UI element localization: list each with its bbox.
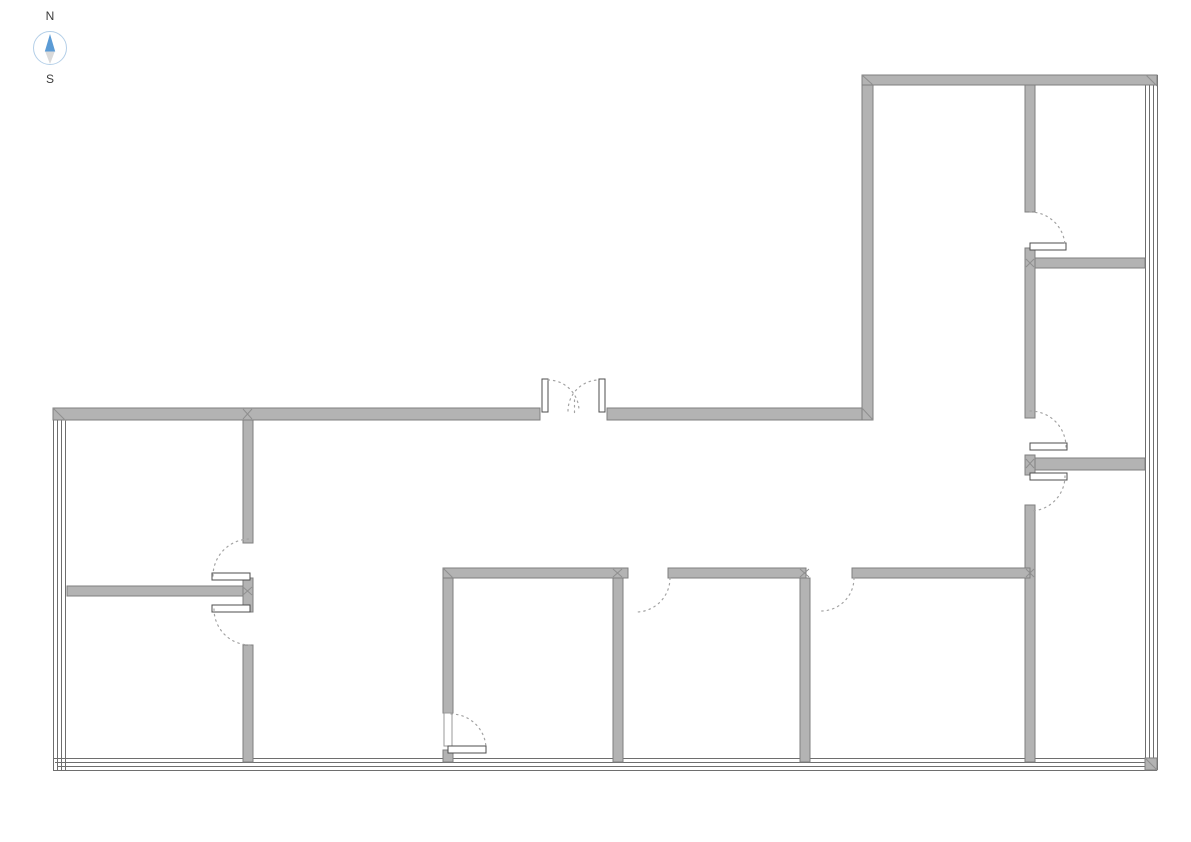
interior-wall-room1-left-upper (443, 578, 453, 713)
interior-wall-bottom-horizontal-2 (668, 568, 806, 578)
interior-wall-right-vertical-2 (1025, 248, 1035, 418)
door-leaf-bottom-right-room (1030, 473, 1067, 480)
exterior-wall-wing-west (862, 75, 873, 420)
interior-wall-bottom-horizontal-3 (852, 568, 1030, 578)
door-leaf-middle-right-room (1030, 443, 1067, 450)
door-swing-room2 (636, 578, 670, 612)
entry-double-door-right-swing (568, 380, 599, 411)
exterior-wall-north-right (607, 408, 873, 420)
entry-double-door-right-leaf (599, 379, 605, 412)
exterior-wall-north-left (53, 408, 540, 420)
interior-wall-left-vertical-upper (243, 420, 253, 543)
interior-wall-left-vertical-lower (243, 645, 253, 762)
door-frame-room1 (444, 713, 452, 746)
interior-wall-bottom-horizontal-1 (443, 568, 628, 578)
door-swing-left-lower-room (214, 609, 250, 645)
door-leaf-left-upper-room (212, 573, 250, 580)
compass-north-label: N (46, 9, 55, 23)
interior-wall-room3-left (800, 578, 810, 762)
interior-wall-right-door-stub (1025, 455, 1035, 475)
floorplan-canvas: N S (0, 0, 1191, 842)
door-swing-top-right-room (1030, 212, 1065, 247)
door-leaf-top-right-room (1030, 243, 1066, 250)
door-swing-room1 (451, 714, 486, 749)
door-frames-layer (444, 713, 452, 746)
interior-wall-right-vertical-3 (1025, 505, 1035, 762)
door-leaves-layer (212, 243, 1067, 753)
door-swing-room3 (821, 578, 854, 611)
miters-layer (53, 75, 1157, 770)
door-swing-left-upper-room (213, 539, 250, 576)
interior-wall-right-horizontal-upper (1035, 258, 1145, 268)
entry-double-door-left-leaf (542, 379, 548, 412)
curtain-walls-layer (53, 75, 1158, 771)
interior-wall-right-vertical-1 (1025, 85, 1035, 212)
interior-wall-left-horizontal (67, 586, 243, 596)
exterior-wall-wing-north (862, 75, 1157, 85)
interior-wall-room2-left (613, 578, 623, 762)
interior-wall-right-horizontal-lower (1035, 458, 1145, 470)
door-leaf-left-lower-room (212, 605, 250, 612)
door-swings-layer (213, 212, 1066, 749)
floorplan-svg (0, 0, 1191, 842)
compass: N S (25, 5, 77, 90)
walls-layer (53, 75, 1157, 770)
compass-south-label: S (46, 72, 54, 86)
door-leaf-room1 (448, 746, 486, 753)
